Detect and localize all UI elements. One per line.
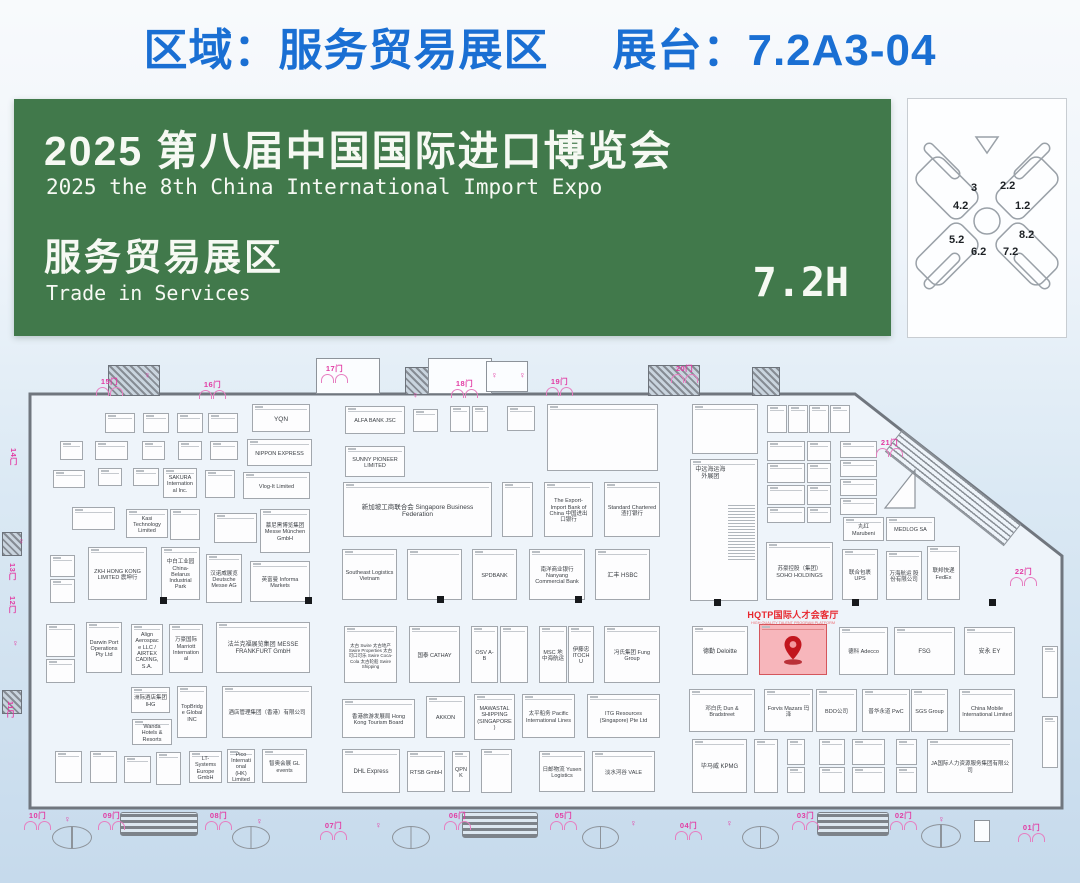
gate-15门: 15门 [96,376,123,395]
person-icon: ♀ [256,816,263,826]
booth: Standard Chartered 渣打银行 [604,482,660,537]
target-booth-callout: HQTP国际人才会客厅 HIGH QUALITY TALENT PROGRAM … [745,608,841,625]
escalator-block-icon [752,367,780,396]
booth [156,752,181,785]
booth: FSG [894,627,955,675]
booth: Darwin Port Operations Pty Ltd [86,622,122,673]
person-icon: ♀ [630,818,637,828]
booth: JA国际人力资源服务集团有限公司 [927,739,1013,793]
booth [809,405,829,433]
booth: China Mobile International Limited [959,689,1015,732]
booth: 日邮物流 Yusen Logistics [539,751,585,792]
booth: Pico International (HK) Limited [227,749,255,783]
booth [807,507,831,523]
booth [819,767,845,793]
target-booth-subtitle: HIGH QUALITY TALENT PROGRAM PLATFORM [745,621,841,625]
booth: ITG Resources (Singapore) Pte Ltd [587,694,660,738]
booth: YQN [252,404,310,432]
gate-07门: 07门 [320,820,347,839]
booth: 万豪国际 Marriott International [169,624,203,673]
booth: Align Aerospace LLC / AIRTEX CADING,S.A. [131,624,163,675]
restroom-icon [392,826,430,849]
person-icon: ♀ [12,638,19,648]
booth [807,463,831,483]
booth [142,441,165,460]
booth: 邓白氏 Dun & Bradstreet [689,689,755,732]
booth: The Export-Import Bank of China 中国进出口银行 [544,482,593,537]
column-marker [852,599,859,606]
booth [72,507,115,530]
gate-04门: 04门 [675,820,702,839]
booth: Wanda Hotels & Resorts [132,719,172,745]
booth [124,756,151,783]
booth [208,413,238,433]
booth: ZKH HONG KONG LIMITED 震坤行 [88,547,147,600]
booth [502,482,533,537]
booth [90,751,117,783]
booth: MEDLOG SA [886,517,935,541]
booth [787,739,805,765]
booth: 联合包裹 UPS [842,549,878,600]
stairs-icon [462,812,538,838]
column-marker [575,596,582,603]
person-icon: ♀ [726,818,733,828]
booth [767,463,805,483]
booth: 中白工业园 China-Belarus Industrial Park [161,547,200,600]
booth: TopBridge Global INC [177,686,207,738]
restroom-icon [52,826,92,849]
booth [896,739,917,765]
booth: Forvis Mazars 玛泽 [764,689,813,732]
booth: 国泰 CATHAY [409,626,460,683]
booth: 洲际酒店集团 IHG [131,687,170,713]
location-pin-icon [781,635,805,665]
booth: 汉诺威展览 Deutsche Messe AG [206,554,242,603]
person-icon: ♀ [938,814,945,824]
booth: QPNK [452,751,470,792]
booth [767,485,805,505]
booth: Vlog-It Limited [243,472,310,499]
booth: 慕尼黑博览集团 Messe München GmbH [260,509,310,553]
booth [787,767,805,793]
booth [840,441,877,458]
booth [830,405,850,433]
floor-plan: ♀♀♀♀♀♀♀♀♀♀♀♀YQNNIPPON EXPRESSALFA BANK J… [0,0,1080,883]
booth [143,413,169,433]
gate-02门: 02门 [890,810,917,829]
booth: Southeast Logistics Vietnam [342,549,397,600]
booth: 冯氏集团 Fung Group [604,626,660,683]
column-marker [714,599,721,606]
booth [133,468,159,486]
booth [767,405,787,433]
gate-09门: 09门 [98,810,125,829]
target-booth [759,624,827,675]
booth: RTSB GmbH [407,751,445,792]
booth: 普华永道 PwC [862,689,910,732]
booth [767,441,805,461]
booth: MAWASTAL SHIPPING (SINGAPORE) [474,694,515,740]
booth [472,406,488,432]
entrance-structure [974,820,990,842]
booth [1042,646,1058,698]
person-icon: ♀ [375,820,382,830]
booth: 太古 Swire 太古地产 Swire Properties 太古可口可乐 Sw… [344,626,397,683]
booth: 酒店管理集团（香港）有限公司 [222,686,312,738]
booth [55,751,82,783]
booth [507,406,535,431]
gate-17门: 17门 [321,363,348,382]
booth: 苏豪控股（集团） SOHO HOLDINGS [766,542,833,600]
gate-18门: 18门 [451,378,478,397]
booth [896,767,917,793]
gate-10门: 10门 [24,810,51,829]
gate-20门: 20门 [671,363,698,382]
booth [407,549,462,600]
gate-01门: 01门 [1018,822,1045,841]
booth: Kasi Technology Limited [126,509,168,538]
booth [50,579,75,603]
gate-05门: 05门 [550,810,577,829]
gate-13门: 13门 [7,563,18,580]
booth: ALFA BANK JSC [345,406,405,434]
booth [177,413,203,433]
booth [46,624,75,657]
booth [500,626,528,683]
booth [450,406,470,432]
column-marker [160,597,167,604]
booth: SPDBANK [472,549,517,600]
booth: AKKON [426,696,465,738]
booth: 智奥会展 GL events [262,749,307,783]
column-marker [305,597,312,604]
person-icon: ♀ [412,390,419,400]
booth [95,441,128,460]
booth [413,409,438,432]
booth: SAKURA International Inc. [163,468,197,498]
stairs-icon [120,812,198,836]
gate-21门: 21门 [876,437,903,456]
booth: 淡水河谷 VALE [592,751,655,792]
booth [852,767,885,793]
restroom-icon [921,824,961,848]
column-marker [437,596,444,603]
booth [170,509,200,540]
booth: 英富曼 Informa Markets [250,561,310,602]
booth [46,659,75,683]
gate-16门: 16门 [199,379,226,398]
booth: 毕马威 KPMG [692,739,747,793]
booth [840,479,877,496]
booth: LT-Systems Europe GmbH [189,751,222,783]
booth [1042,716,1058,768]
booth [788,405,808,433]
booth [481,749,512,793]
booth: 南洋商业银行 Nanyang Commercial Bank [529,549,585,600]
booth [210,441,238,460]
gate-03门: 03门 [792,810,819,829]
gate-11门: 11门 [5,701,16,718]
gate-22门: 22门 [1010,566,1037,585]
gate-12门: 12门 [7,596,18,613]
booth [754,739,778,793]
booth: 丸红 Marubeni [843,517,884,541]
booth [807,485,831,505]
booth: 联邦快递 FedEx [927,546,960,600]
booth: SGS Group [911,689,948,732]
booth [205,470,235,498]
booth [547,404,658,471]
booth: BDO公司 [816,689,857,732]
booth: 中远海运海外展团 [690,459,758,601]
gate-08门: 08门 [205,810,232,829]
booth: 德勤 Deloitte [692,626,748,675]
booth [50,555,75,577]
booth [840,498,877,515]
expo-floorplan-page: 区域：服务贸易展区 展台：7.2A3-04 2025 第八届中国国际进口博览会 … [0,0,1080,883]
person-icon: ♀ [491,370,498,380]
booth: 新加坡工商联合会 Singapore Business Federation [343,482,492,537]
booth [692,404,758,454]
booth: 汇丰 HSBC [595,549,650,600]
booth: 德科 Adecco [839,627,888,675]
gate-19门: 19门 [546,376,573,395]
booth: 万海航运 股份有限公司 [886,551,922,600]
booth: 太平船务 Pacific International Lines [522,694,575,738]
booth: DHL Express [342,749,400,793]
booth [767,507,805,523]
booth [105,413,135,433]
person-icon: ♀ [519,370,526,380]
booth: 安永 EY [964,627,1015,675]
booth [98,468,122,486]
booth: NIPPON EXPRESS [247,439,312,466]
person-icon: ♀ [144,370,151,380]
booth: OSV A-B [471,626,498,683]
booth: 香港旅游发展局 Hong Kong Tourism Board [342,699,415,738]
stairs-icon [817,812,889,836]
gate-06门: 06门 [444,810,471,829]
person-icon: ♀ [18,536,25,546]
booth: 伊藤忠 ITOCHU [568,626,594,683]
booth: SUNNY PIONEER LIMITED [345,446,405,477]
booth [214,513,257,543]
booth [807,441,831,461]
booth: MSC 地中海航运 [539,626,567,683]
booth [60,441,83,460]
booth [852,739,885,765]
target-booth-name: HQTP国际人才会客厅 [745,608,841,621]
booth [819,739,845,765]
person-icon: ♀ [64,814,71,824]
gate-14门: 14门 [8,448,19,465]
booth [178,441,202,460]
booth: 法兰克福展览集团 MESSE FRANKFURT GmbH [216,622,310,673]
restroom-icon [742,826,779,849]
booth [53,470,85,488]
restroom-icon [582,826,619,849]
column-marker [989,599,996,606]
booth [840,460,877,477]
restroom-icon [232,826,270,849]
